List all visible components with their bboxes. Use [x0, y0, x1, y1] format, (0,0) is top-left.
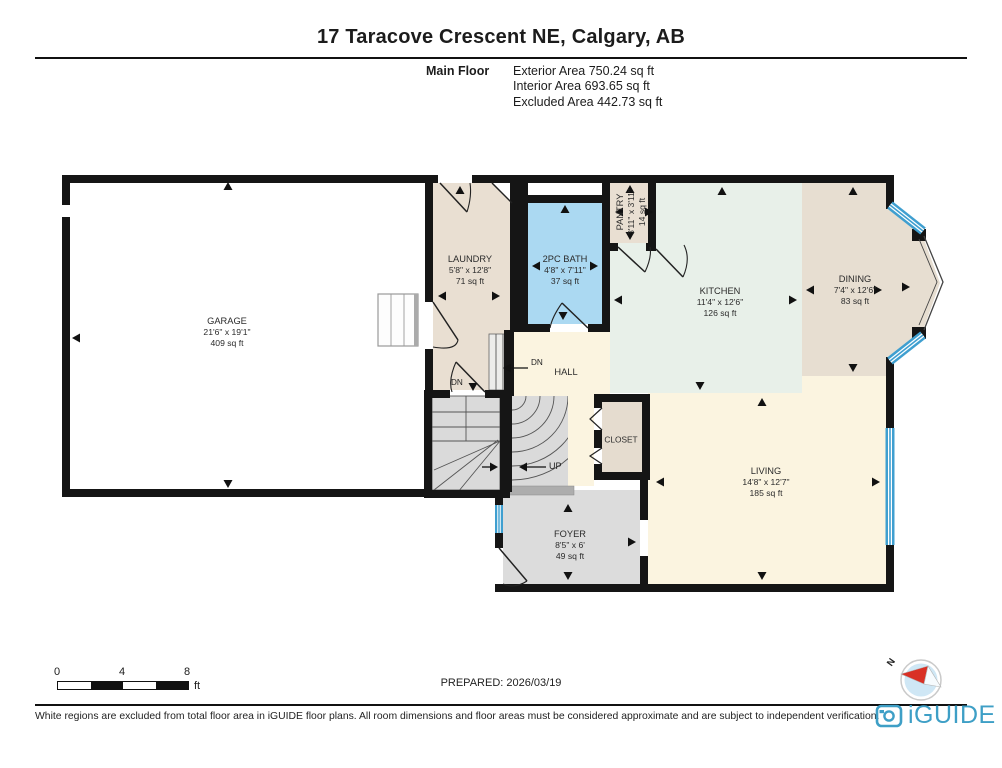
room-label-pantry: PANTRY 3'11" x 3'11" 14 sq ft — [614, 189, 648, 235]
pantry-area: 14 sq ft — [637, 189, 648, 235]
footer-disclaimer: White regions are excluded from total fl… — [35, 711, 879, 722]
pantry-name: PANTRY — [614, 189, 626, 235]
dining-dims: 7'4" x 12'6" — [834, 285, 876, 296]
garage-name: GARAGE — [203, 315, 250, 327]
bath-area: 37 sq ft — [543, 276, 588, 287]
stairs-up-label: UP — [549, 461, 562, 471]
foyer-area: 49 sq ft — [554, 551, 586, 562]
room-label-foyer: FOYER 8'5" x 6' 49 sq ft — [554, 528, 586, 562]
room-label-closet: CLOSET — [604, 435, 637, 446]
room-label-garage: GARAGE 21'6" x 19'1" 409 sq ft — [203, 315, 250, 349]
living-dims: 14'8" x 12'7" — [742, 477, 789, 488]
iguide-brand-text: iGUIDE — [908, 701, 996, 730]
foyer-name: FOYER — [554, 528, 586, 540]
iguide-logo: iGUIDE — [874, 701, 996, 730]
floor-label: Main Floor — [426, 64, 506, 78]
garage-area: 409 sq ft — [203, 338, 250, 349]
garage-dims: 21'6" x 19'1" — [203, 327, 250, 338]
kitchen-area: 126 sq ft — [697, 308, 744, 319]
laundry-name: LAUNDRY — [448, 253, 492, 265]
stairs-dn-label-1: DN — [531, 358, 543, 367]
interior-area: Interior Area 693.65 sq ft — [513, 79, 662, 94]
hall-name: HALL — [554, 366, 577, 378]
dining-name: DINING — [834, 273, 876, 285]
laundry-area: 71 sq ft — [448, 276, 492, 287]
dining-area: 83 sq ft — [834, 296, 876, 307]
laundry-dims: 5'8" x 12'8" — [448, 265, 492, 276]
kitchen-dims: 11'4" x 12'6" — [697, 297, 744, 308]
camera-icon — [874, 703, 904, 729]
stairs-dn-label-2: DN — [451, 378, 463, 387]
header-divider — [35, 57, 967, 59]
living-area: 185 sq ft — [742, 488, 789, 499]
room-label-kitchen: KITCHEN 11'4" x 12'6" 126 sq ft — [697, 285, 744, 319]
prepared-date: PREPARED: 2026/03/19 — [0, 677, 1002, 689]
foyer-dims: 8'5" x 6' — [554, 540, 586, 551]
bath-dims: 4'8" x 7'11" — [543, 265, 588, 276]
room-label-bath: 2PC BATH 4'8" x 7'11" 37 sq ft — [543, 253, 588, 287]
kitchen-name: KITCHEN — [697, 285, 744, 297]
room-label-laundry: LAUNDRY 5'8" x 12'8" 71 sq ft — [448, 253, 492, 287]
floor-stats: Exterior Area 750.24 sq ft Interior Area… — [513, 64, 662, 110]
floorplan-page: 17 Taracove Crescent NE, Calgary, AB Mai… — [0, 0, 1002, 768]
living-name: LIVING — [742, 465, 789, 477]
exterior-area: Exterior Area 750.24 sq ft — [513, 64, 662, 79]
pantry-dims: 3'11" x 3'11" — [626, 189, 637, 235]
floorplan-svg — [55, 165, 945, 605]
excluded-area: Excluded Area 442.73 sq ft — [513, 95, 662, 110]
footer-divider — [35, 704, 967, 706]
page-title: 17 Taracove Crescent NE, Calgary, AB — [0, 26, 1002, 49]
room-label-hall: HALL — [554, 366, 577, 378]
bath-name: 2PC BATH — [543, 253, 588, 265]
closet-name: CLOSET — [604, 435, 637, 446]
room-label-living: LIVING 14'8" x 12'7" 185 sq ft — [742, 465, 789, 499]
room-label-dining: DINING 7'4" x 12'6" 83 sq ft — [834, 273, 876, 307]
